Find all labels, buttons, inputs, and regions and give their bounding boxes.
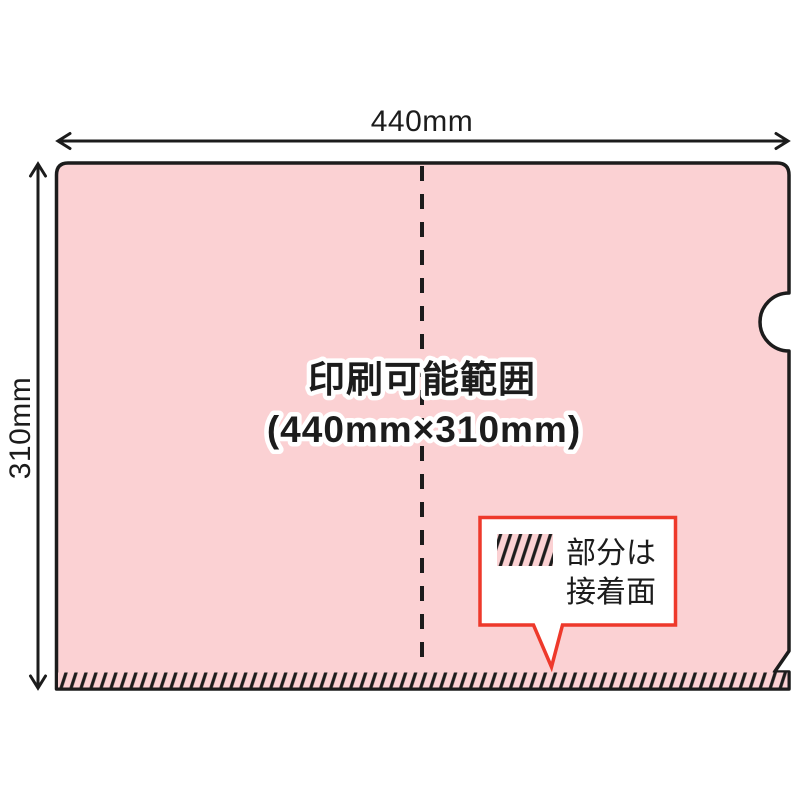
width-dimension: 440mm — [58, 105, 788, 149]
height-dimension: 310mm — [4, 164, 46, 688]
adhesive-strip — [58, 673, 788, 688]
clearfile-template-diagram: 440mm 310mm 印刷可能範囲 (440mm×310mm) 部分は 接着面 — [0, 0, 800, 800]
hatch-swatch-icon — [497, 534, 553, 566]
width-label: 440mm — [371, 105, 474, 138]
callout-text-line2: 接着面 — [566, 576, 656, 609]
print-area-label-line2: (440mm×310mm) — [267, 409, 581, 450]
callout-text-line1: 部分は — [566, 537, 656, 570]
diagram-canvas: 440mm 310mm 印刷可能範囲 (440mm×310mm) 部分は 接着面 — [0, 0, 800, 800]
height-label: 310mm — [4, 377, 37, 480]
print-area-label-line1: 印刷可能範囲 — [308, 359, 536, 400]
